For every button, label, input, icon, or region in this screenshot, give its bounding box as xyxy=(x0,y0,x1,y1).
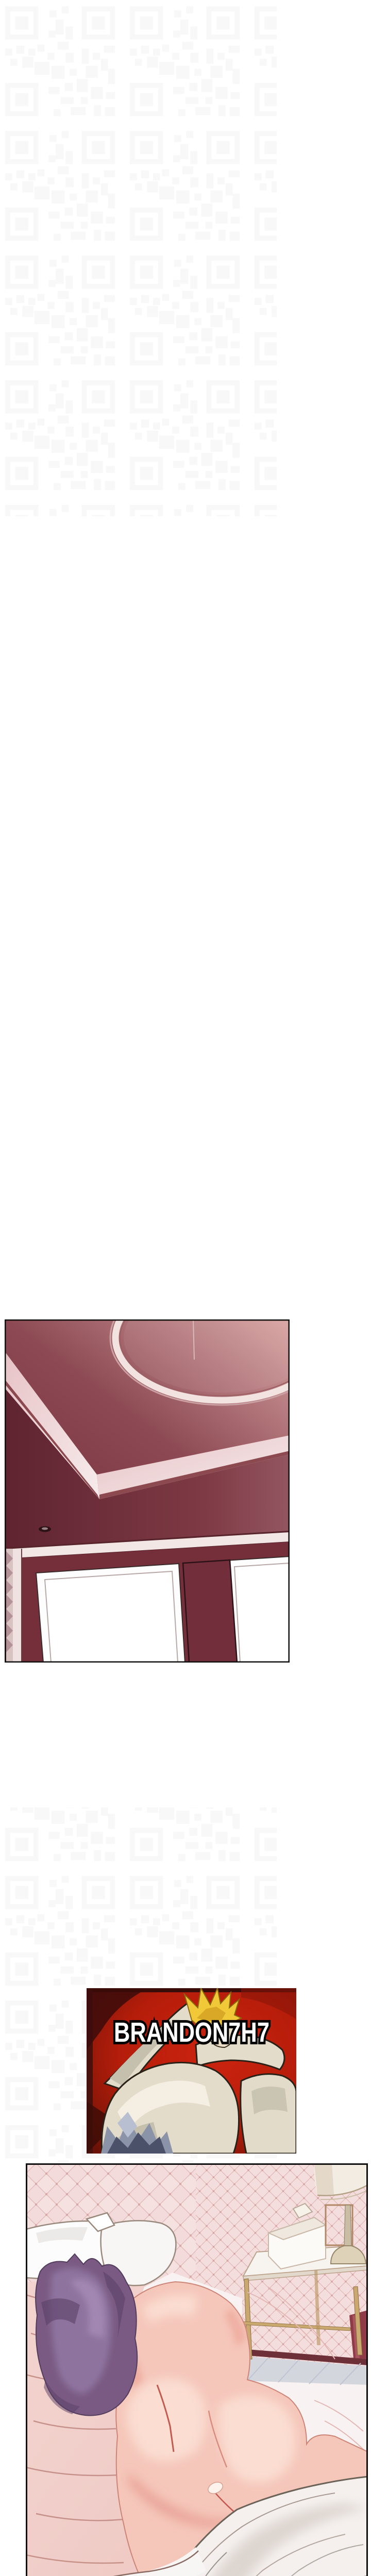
svg-text:BRANDON7H7: BRANDON7H7 xyxy=(114,2017,269,2048)
